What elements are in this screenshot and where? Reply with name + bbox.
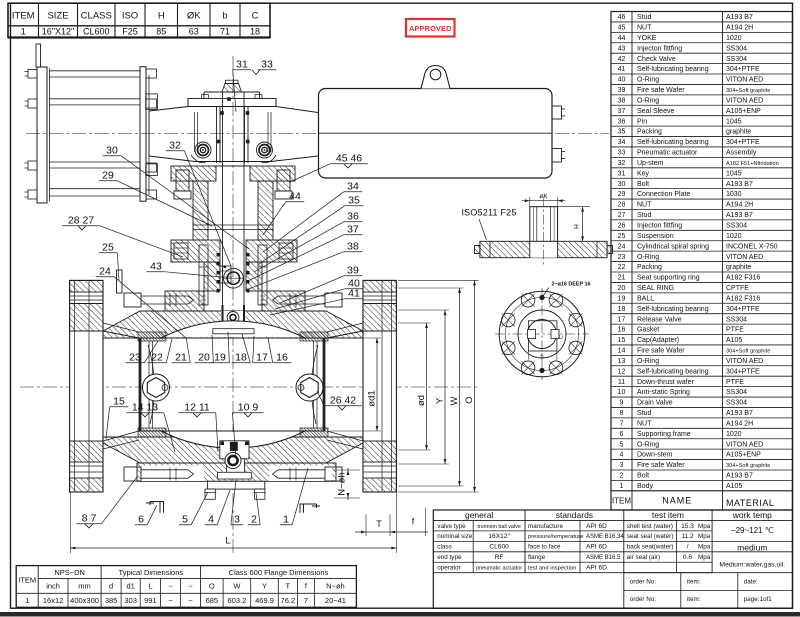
svg-text:991: 991 [144, 596, 157, 605]
svg-text:7: 7 [304, 596, 308, 605]
svg-text:46: 46 [618, 14, 626, 21]
svg-text:Packing: Packing [637, 129, 662, 136]
svg-text:16X12″: 16X12″ [488, 533, 510, 540]
svg-text:31: 31 [618, 170, 626, 177]
svg-text:ASME B16.5: ASME B16.5 [586, 555, 621, 561]
svg-text:30: 30 [106, 145, 118, 157]
svg-text:SS304: SS304 [726, 223, 747, 230]
svg-text:H: H [574, 224, 581, 229]
svg-text:page:1of1: page:1of1 [744, 596, 773, 603]
svg-text:−: − [188, 582, 193, 591]
svg-text:Self-lubricating bearing: Self-lubricating bearing [637, 66, 709, 73]
svg-text:−: − [168, 582, 173, 591]
svg-text:ød1: ød1 [367, 390, 378, 406]
svg-text:Gasket: Gasket [637, 327, 659, 334]
svg-text:−29~121 ℃: −29~121 ℃ [731, 526, 774, 535]
svg-text:F25: F25 [122, 26, 138, 36]
svg-text:40: 40 [618, 77, 626, 84]
svg-text:304+PTFE: 304+PTFE [726, 368, 760, 375]
svg-text:Fire safe Wafer: Fire safe Wafer [637, 348, 685, 355]
svg-text:RF: RF [495, 554, 504, 561]
svg-text:32: 32 [169, 140, 181, 152]
svg-text:valve type: valve type [437, 523, 466, 530]
svg-text:A105+ENP: A105+ENP [726, 452, 761, 459]
svg-text:ISO: ISO [122, 10, 138, 21]
svg-text:304+PTFE: 304+PTFE [726, 66, 760, 73]
svg-text:304+Soft graphite: 304+Soft graphite [726, 349, 770, 355]
svg-text:graphite: graphite [726, 264, 751, 271]
svg-text:YOKE: YOKE [637, 35, 657, 42]
svg-text:ITEM: ITEM [12, 10, 35, 21]
svg-text:85: 85 [156, 26, 166, 36]
svg-text:2: 2 [251, 514, 257, 526]
svg-text:date:: date: [744, 579, 758, 586]
svg-text:5: 5 [620, 441, 624, 448]
svg-text:item:: item: [687, 579, 701, 586]
svg-text:4: 4 [620, 452, 624, 459]
svg-text:VITON AED: VITON AED [726, 441, 763, 448]
svg-text:manufacture: manufacture [528, 523, 563, 530]
svg-text:BALL: BALL [637, 295, 654, 302]
svg-text:11.2: 11.2 [681, 533, 694, 540]
svg-text:43: 43 [150, 261, 162, 273]
svg-text:work temp: work temp [732, 510, 772, 520]
svg-text:1: 1 [620, 483, 624, 490]
svg-text:general: general [465, 510, 493, 520]
svg-text:20: 20 [618, 285, 626, 292]
svg-text:INCONEL X-750: INCONEL X-750 [726, 243, 778, 250]
svg-text:Mpa: Mpa [698, 554, 711, 561]
svg-text:A193 B7: A193 B7 [726, 14, 753, 21]
svg-text:Self-lubricating bearing: Self-lubricating bearing [637, 139, 709, 146]
svg-text:graphite: graphite [726, 129, 751, 136]
svg-text:O: O [209, 582, 215, 591]
svg-text:4: 4 [208, 514, 214, 526]
svg-text:C: C [252, 10, 259, 21]
svg-text:API 6D: API 6D [586, 544, 607, 551]
svg-text:T: T [376, 519, 382, 529]
svg-text:15: 15 [618, 337, 626, 344]
svg-text:44: 44 [289, 191, 301, 203]
svg-text:CL600: CL600 [489, 544, 509, 551]
svg-text:37: 37 [347, 224, 359, 236]
svg-text:nominal size: nominal size [437, 533, 472, 540]
svg-text:1: 1 [283, 514, 289, 526]
svg-text:11: 11 [618, 379, 625, 386]
svg-text:Release Valve: Release Valve [637, 316, 682, 323]
svg-text:22: 22 [151, 352, 163, 364]
svg-text:ITEM: ITEM [18, 576, 36, 585]
svg-text:VITON AED: VITON AED [726, 97, 763, 104]
svg-text:A182 F316: A182 F316 [726, 295, 760, 302]
svg-text:MATERIAL: MATERIAL [726, 498, 774, 508]
svg-text:Typical Dimensions: Typical Dimensions [119, 568, 184, 577]
svg-text:33: 33 [261, 59, 273, 71]
svg-text:25: 25 [618, 233, 626, 240]
svg-text:Fire safe Wafer: Fire safe Wafer [637, 462, 685, 469]
svg-text:O-Ring: O-Ring [637, 77, 659, 84]
svg-text:304+Soft graphite: 304+Soft graphite [726, 88, 770, 94]
svg-text:Stud: Stud [637, 212, 652, 219]
svg-text:NUT: NUT [637, 420, 652, 427]
svg-text:30: 30 [618, 181, 626, 188]
svg-text:18: 18 [618, 306, 626, 313]
svg-text:O-Ring: O-Ring [637, 97, 659, 104]
svg-text:17: 17 [256, 352, 268, 364]
svg-text:8 7: 8 7 [82, 513, 97, 525]
svg-text:34: 34 [618, 139, 626, 146]
svg-text:20−41: 20−41 [325, 596, 346, 605]
svg-text:A182 F316: A182 F316 [726, 275, 760, 282]
svg-text:A193 B7: A193 B7 [726, 212, 753, 219]
svg-text:23: 23 [618, 254, 626, 261]
svg-text:SIZE: SIZE [47, 10, 68, 21]
svg-text:71: 71 [220, 26, 230, 36]
svg-text:2: 2 [620, 473, 624, 480]
svg-text:inch: inch [46, 582, 60, 591]
svg-text:16: 16 [618, 327, 626, 334]
svg-text:45: 45 [618, 25, 626, 32]
svg-text:43: 43 [618, 45, 626, 52]
svg-text:API 6D: API 6D [586, 523, 607, 530]
svg-text:A105: A105 [726, 337, 742, 344]
svg-text:Down-thrust wafer: Down-thrust wafer [637, 379, 694, 386]
svg-text:16"X12": 16"X12" [42, 26, 74, 36]
svg-text:A194 2H: A194 2H [726, 202, 753, 209]
svg-text:L: L [148, 582, 152, 591]
svg-text:32: 32 [618, 160, 626, 167]
svg-text:1020: 1020 [726, 233, 742, 240]
svg-text:−: − [168, 596, 173, 605]
svg-text:flange: flange [528, 554, 546, 561]
svg-text:22: 22 [618, 264, 626, 271]
svg-text:38: 38 [347, 241, 359, 253]
svg-text:order No:: order No: [630, 596, 656, 603]
svg-text:36: 36 [347, 211, 359, 223]
svg-text:304+Soft graphite: 304+Soft graphite [726, 463, 770, 469]
svg-text:29: 29 [618, 191, 626, 198]
svg-text:CPTFE: CPTFE [726, 285, 749, 292]
svg-text:operator: operator [437, 565, 460, 572]
svg-text:21: 21 [175, 352, 187, 364]
svg-text:ød: ød [416, 395, 427, 406]
svg-text:H: H [158, 10, 165, 21]
svg-text:35: 35 [348, 195, 360, 207]
svg-text:Seat supporting ring: Seat supporting ring [637, 275, 700, 282]
svg-text:Check Valve: Check Valve [637, 56, 676, 63]
svg-text:14: 14 [618, 348, 626, 355]
svg-text:1020: 1020 [726, 35, 742, 42]
svg-text:O-Ring: O-Ring [637, 441, 659, 448]
svg-text:O-Ring: O-Ring [637, 254, 659, 261]
svg-text:O: O [464, 397, 475, 404]
svg-text:NUT: NUT [637, 25, 652, 32]
svg-text:Bolt: Bolt [637, 181, 649, 188]
svg-text:A182 F51+Nitridation: A182 F51+Nitridation [726, 161, 779, 167]
svg-text:trunnion ball valve: trunnion ball valve [477, 524, 520, 530]
svg-text:Down-stem: Down-stem [637, 452, 673, 459]
svg-text:ITEM: ITEM [612, 497, 631, 506]
svg-text:9: 9 [620, 400, 624, 407]
svg-text:/: / [687, 544, 689, 551]
svg-text:back seat(water): back seat(water) [627, 544, 674, 551]
svg-text:API 6D: API 6D [586, 565, 607, 572]
svg-text:Stud: Stud [637, 14, 652, 21]
svg-text:A193 B7: A193 B7 [726, 410, 753, 417]
svg-text:1020: 1020 [726, 431, 742, 438]
svg-text:29: 29 [102, 170, 114, 182]
svg-text:38: 38 [618, 97, 626, 104]
svg-text:Class 600 Flange Dimensions: Class 600 Flange Dimensions [229, 568, 329, 577]
svg-text:L: L [225, 536, 230, 547]
svg-text:10 9: 10 9 [238, 402, 259, 414]
svg-text:39: 39 [347, 265, 359, 277]
svg-text:Seal Sleeve: Seal Sleeve [637, 108, 674, 115]
svg-text:26: 26 [618, 223, 626, 230]
svg-text:15.3: 15.3 [681, 523, 694, 530]
svg-text:Cap(Adapter): Cap(Adapter) [637, 337, 679, 344]
svg-text:A194 2H: A194 2H [726, 25, 753, 32]
svg-text:Drain Valve: Drain Valve [637, 400, 673, 407]
svg-text:45 46: 45 46 [336, 153, 362, 165]
svg-text:d1: d1 [126, 582, 134, 591]
svg-text:Mpa: Mpa [698, 544, 711, 551]
svg-text:Self-lubricating bearing: Self-lubricating bearing [637, 306, 709, 313]
svg-text:1: 1 [25, 596, 29, 605]
svg-text:Mpa: Mpa [698, 523, 711, 530]
svg-text:øK: øK [539, 193, 548, 200]
svg-text:SS304: SS304 [726, 56, 747, 63]
svg-text:SEAL RING: SEAL RING [637, 285, 674, 292]
svg-text:test item: test item [652, 510, 684, 520]
svg-text:5: 5 [182, 514, 188, 526]
svg-text:21: 21 [618, 275, 626, 282]
svg-text:18: 18 [235, 352, 247, 364]
svg-text:W: W [233, 582, 241, 591]
svg-text:VITON AED: VITON AED [726, 254, 763, 261]
svg-text:6: 6 [620, 431, 624, 438]
svg-text:16x12: 16x12 [43, 596, 63, 605]
svg-text:15: 15 [113, 396, 125, 408]
svg-text:35: 35 [618, 129, 626, 136]
svg-text:18: 18 [250, 26, 260, 36]
svg-text:Mpa: Mpa [698, 533, 711, 540]
svg-text:1: 1 [21, 26, 26, 36]
svg-text:d: d [109, 582, 113, 591]
svg-text:36: 36 [618, 118, 626, 125]
svg-text:class: class [437, 544, 451, 551]
svg-text:33: 33 [618, 150, 626, 157]
svg-text:ØK: ØK [187, 10, 201, 21]
svg-text:Fire safe Wafer: Fire safe Wafer [637, 87, 685, 94]
svg-text:304+PTFE: 304+PTFE [726, 306, 760, 313]
svg-text:SS304: SS304 [726, 400, 747, 407]
svg-text:23: 23 [129, 352, 141, 364]
svg-text:Packing: Packing [637, 264, 662, 271]
svg-text:Injecton fittfing: Injecton fittfing [637, 223, 682, 230]
svg-text:400x300: 400x300 [70, 596, 99, 605]
svg-text:pressure/temperature: pressure/temperature [528, 534, 583, 540]
svg-text:1045: 1045 [726, 118, 742, 125]
svg-text:Injecton fittfing: Injecton fittfing [637, 45, 682, 52]
svg-text:Y: Y [435, 397, 446, 404]
svg-text:19: 19 [618, 295, 626, 302]
svg-text:Cylindrical spiral spring: Cylindrical spiral spring [637, 243, 709, 250]
svg-text:T: T [286, 582, 291, 591]
svg-text:12: 12 [618, 368, 626, 375]
svg-text:469.9: 469.9 [255, 596, 274, 605]
svg-text:C: C [559, 335, 565, 339]
svg-text:Suspension: Suspension [637, 233, 674, 240]
svg-text:medium: medium [737, 543, 767, 553]
svg-text:pneumatic actuator: pneumatic actuator [476, 566, 522, 572]
svg-text:mm: mm [78, 582, 91, 591]
svg-text:2−ø16 DEEP 16: 2−ø16 DEEP 16 [551, 282, 590, 288]
svg-text:26 42: 26 42 [330, 395, 356, 407]
svg-text:N−øh: N−øh [326, 582, 345, 591]
svg-text:31: 31 [236, 59, 248, 71]
svg-text:Up-stem: Up-stem [637, 160, 664, 167]
svg-text:Stud: Stud [637, 410, 652, 417]
svg-text:CLASS: CLASS [81, 10, 112, 21]
svg-text:39: 39 [618, 87, 626, 94]
svg-text:A193 B7: A193 B7 [726, 181, 753, 188]
svg-text:Bolt: Bolt [637, 473, 649, 480]
svg-text:20: 20 [198, 352, 210, 364]
svg-text:A194 2H: A194 2H [726, 420, 753, 427]
svg-text:7: 7 [620, 420, 624, 427]
svg-text:NUT: NUT [637, 202, 652, 209]
svg-text:face to face: face to face [528, 544, 561, 551]
svg-text:1030: 1030 [726, 191, 742, 198]
svg-text:25: 25 [102, 242, 114, 254]
svg-text:item:: item: [687, 596, 701, 603]
svg-text:Pneumatic actuator: Pneumatic actuator [637, 150, 698, 157]
svg-text:b: b [540, 354, 543, 360]
svg-text:Key: Key [637, 170, 650, 177]
svg-text:304+PTFE: 304+PTFE [726, 139, 760, 146]
svg-text:Anti-static Spring: Anti-static Spring [637, 389, 690, 396]
svg-text:385: 385 [105, 596, 118, 605]
svg-text:16: 16 [276, 352, 288, 364]
svg-text:0.6: 0.6 [683, 554, 692, 561]
svg-text:13: 13 [618, 358, 626, 365]
svg-text:shell test (water): shell test (water) [627, 523, 673, 530]
svg-text:Self-lubricating bearing: Self-lubricating bearing [637, 368, 709, 375]
svg-text:VITON AED: VITON AED [726, 358, 763, 365]
svg-text:standards: standards [556, 510, 593, 520]
svg-text:Assembly: Assembly [726, 150, 757, 157]
svg-text:19: 19 [214, 352, 226, 364]
svg-text:24: 24 [618, 243, 626, 250]
svg-text:3: 3 [620, 462, 624, 469]
svg-text:−: − [188, 596, 193, 605]
svg-text:seat seal (water): seat seal (water) [627, 533, 674, 540]
svg-text:O-Ring: O-Ring [637, 358, 659, 365]
svg-text:ASME B16.34: ASME B16.34 [586, 534, 624, 540]
svg-text:SS304: SS304 [726, 45, 747, 52]
svg-text:SS304: SS304 [726, 389, 747, 396]
svg-text:order No:: order No: [630, 579, 656, 586]
svg-text:ISO5211 F25: ISO5211 F25 [461, 208, 516, 218]
svg-text:41: 41 [618, 66, 626, 73]
svg-text:37: 37 [618, 108, 626, 115]
svg-text:42: 42 [618, 56, 626, 63]
svg-text:8: 8 [620, 410, 624, 417]
svg-text:NPS−DN: NPS−DN [54, 568, 85, 577]
svg-text:6: 6 [138, 514, 144, 526]
svg-text:303: 303 [124, 596, 137, 605]
svg-text:b: b [222, 10, 227, 21]
svg-text:24: 24 [99, 266, 111, 278]
svg-text:N−øh: N−øh [337, 472, 348, 496]
svg-text:A193 B7: A193 B7 [726, 473, 753, 480]
svg-text:34: 34 [347, 181, 359, 193]
svg-text:APPROVED: APPROVED [409, 24, 452, 33]
svg-text:44: 44 [618, 35, 626, 42]
svg-text:10: 10 [618, 389, 626, 396]
svg-text:12 11: 12 11 [184, 402, 210, 414]
svg-text:air seal (air): air seal (air) [627, 554, 660, 561]
svg-text:685: 685 [206, 596, 219, 605]
svg-text:Pin: Pin [637, 118, 647, 125]
svg-text:27: 27 [618, 212, 626, 219]
svg-text:PTFE: PTFE [726, 379, 744, 386]
svg-text:Supporting frame: Supporting frame [637, 431, 691, 438]
svg-text:28: 28 [618, 202, 626, 209]
svg-text:SS304: SS304 [726, 316, 747, 323]
svg-text:CL600: CL600 [83, 26, 110, 36]
svg-text:14 13: 14 13 [132, 402, 158, 414]
svg-text:test and inspection: test and inspection [528, 566, 576, 572]
svg-text:W: W [449, 396, 460, 405]
svg-text:41: 41 [348, 288, 360, 300]
svg-text:Body: Body [637, 483, 653, 490]
svg-text:3: 3 [234, 514, 240, 526]
svg-text:Y: Y [262, 582, 267, 591]
svg-text:NAME: NAME [662, 496, 692, 506]
svg-text:28 27: 28 27 [68, 215, 94, 227]
svg-text:VITON AED: VITON AED [726, 77, 763, 84]
svg-text:A105+ENP: A105+ENP [726, 108, 761, 115]
svg-text:1045: 1045 [726, 170, 742, 177]
svg-text:Connection Plate: Connection Plate [637, 191, 690, 198]
svg-text:63: 63 [189, 26, 199, 36]
svg-text:A105: A105 [726, 483, 742, 490]
svg-text:17: 17 [618, 316, 626, 323]
svg-text:PTFE: PTFE [726, 327, 744, 334]
svg-text:603.2: 603.2 [228, 596, 247, 605]
svg-text:Medium:water,gas,oil.: Medium:water,gas,oil. [719, 562, 785, 569]
svg-text:76.2: 76.2 [281, 596, 296, 605]
svg-text:end type: end type [437, 554, 462, 561]
